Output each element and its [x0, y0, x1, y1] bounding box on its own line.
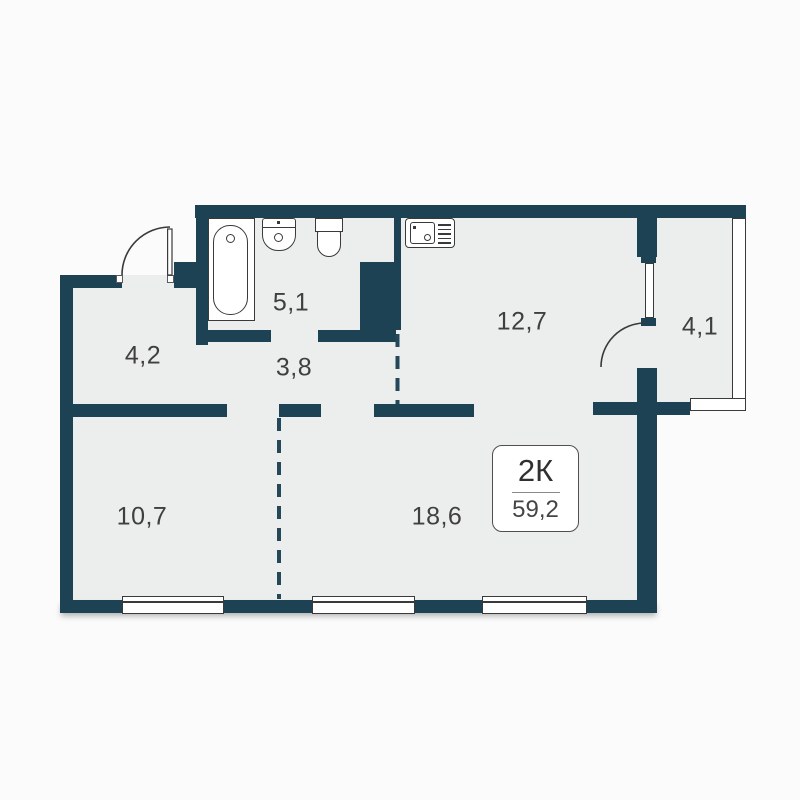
window-living-left — [312, 596, 415, 614]
wall-pillar — [360, 262, 396, 342]
wall-bathroom-bottom-left — [196, 330, 271, 342]
kitchen-drainboard-line — [438, 238, 451, 240]
window-living-right — [482, 596, 587, 614]
wall-right-upper — [637, 218, 657, 257]
kitchen-drainboard-line — [438, 233, 451, 235]
wall-balcony-window-jamb-top — [641, 255, 656, 263]
balcony-glazing-right — [732, 218, 746, 400]
entry-door-jamb-right — [167, 275, 174, 283]
washbasin-edge — [263, 227, 295, 228]
kitchen-sink-drain — [424, 234, 431, 241]
washbasin-tap — [277, 221, 280, 224]
apartment-total-area: 59,2 — [512, 498, 559, 522]
entry-door-jamb-left — [116, 275, 123, 283]
floor-entry — [73, 275, 196, 600]
window-bedroom — [122, 596, 224, 614]
toilet-bowl — [317, 231, 341, 257]
kitchen-drainboard-line — [438, 229, 451, 231]
badge-divider — [512, 492, 560, 494]
wall-mid-3 — [374, 404, 474, 417]
window-pane — [313, 601, 414, 603]
washbasin-drain — [274, 233, 283, 242]
balcony-glazing-bottom — [690, 398, 746, 411]
room-label-bathroom: 5,1 — [273, 289, 309, 318]
entry-door-leaf — [168, 229, 172, 275]
wall-kitchen-left — [394, 218, 401, 330]
room-label-living-room: 18,6 — [412, 503, 463, 532]
wall-bathroom-bottom-right — [318, 330, 362, 342]
kitchen-drainboard-line — [438, 224, 451, 226]
bathtub-drain — [226, 234, 235, 243]
wall-mid-2 — [279, 404, 321, 417]
window-pane — [483, 601, 586, 603]
room-label-balcony: 4,1 — [682, 313, 718, 342]
apartment-badge: 2К 59,2 — [492, 445, 579, 532]
floor-plan: 5,1 4,2 3,8 12,7 4,1 10,7 18,6 2К 59,2 — [0, 0, 800, 800]
entry-door-swing — [122, 227, 170, 275]
room-label-bedroom: 10,7 — [117, 503, 168, 532]
room-label-kitchen: 12,7 — [497, 308, 548, 337]
wall-bathroom-left — [196, 218, 208, 345]
wall-entry-niche — [174, 262, 196, 288]
wall-top — [195, 205, 746, 218]
kitchen-drainboard-line — [438, 242, 451, 244]
apartment-type: 2К — [518, 455, 553, 486]
wall-left — [60, 275, 73, 613]
floor-balcony — [657, 218, 733, 402]
wall-balcony-window-jamb-bottom — [641, 318, 656, 326]
wall-mid-1 — [60, 404, 227, 417]
balcony-window — [645, 263, 654, 318]
window-pane — [123, 601, 223, 603]
wall-entry-top — [60, 275, 122, 288]
room-label-corridor: 3,8 — [276, 354, 312, 383]
toilet-icon — [315, 218, 343, 232]
kitchen-sink-tap — [413, 226, 416, 229]
wall-mid-4 — [593, 402, 690, 415]
room-label-entry-hall: 4,2 — [125, 342, 161, 371]
